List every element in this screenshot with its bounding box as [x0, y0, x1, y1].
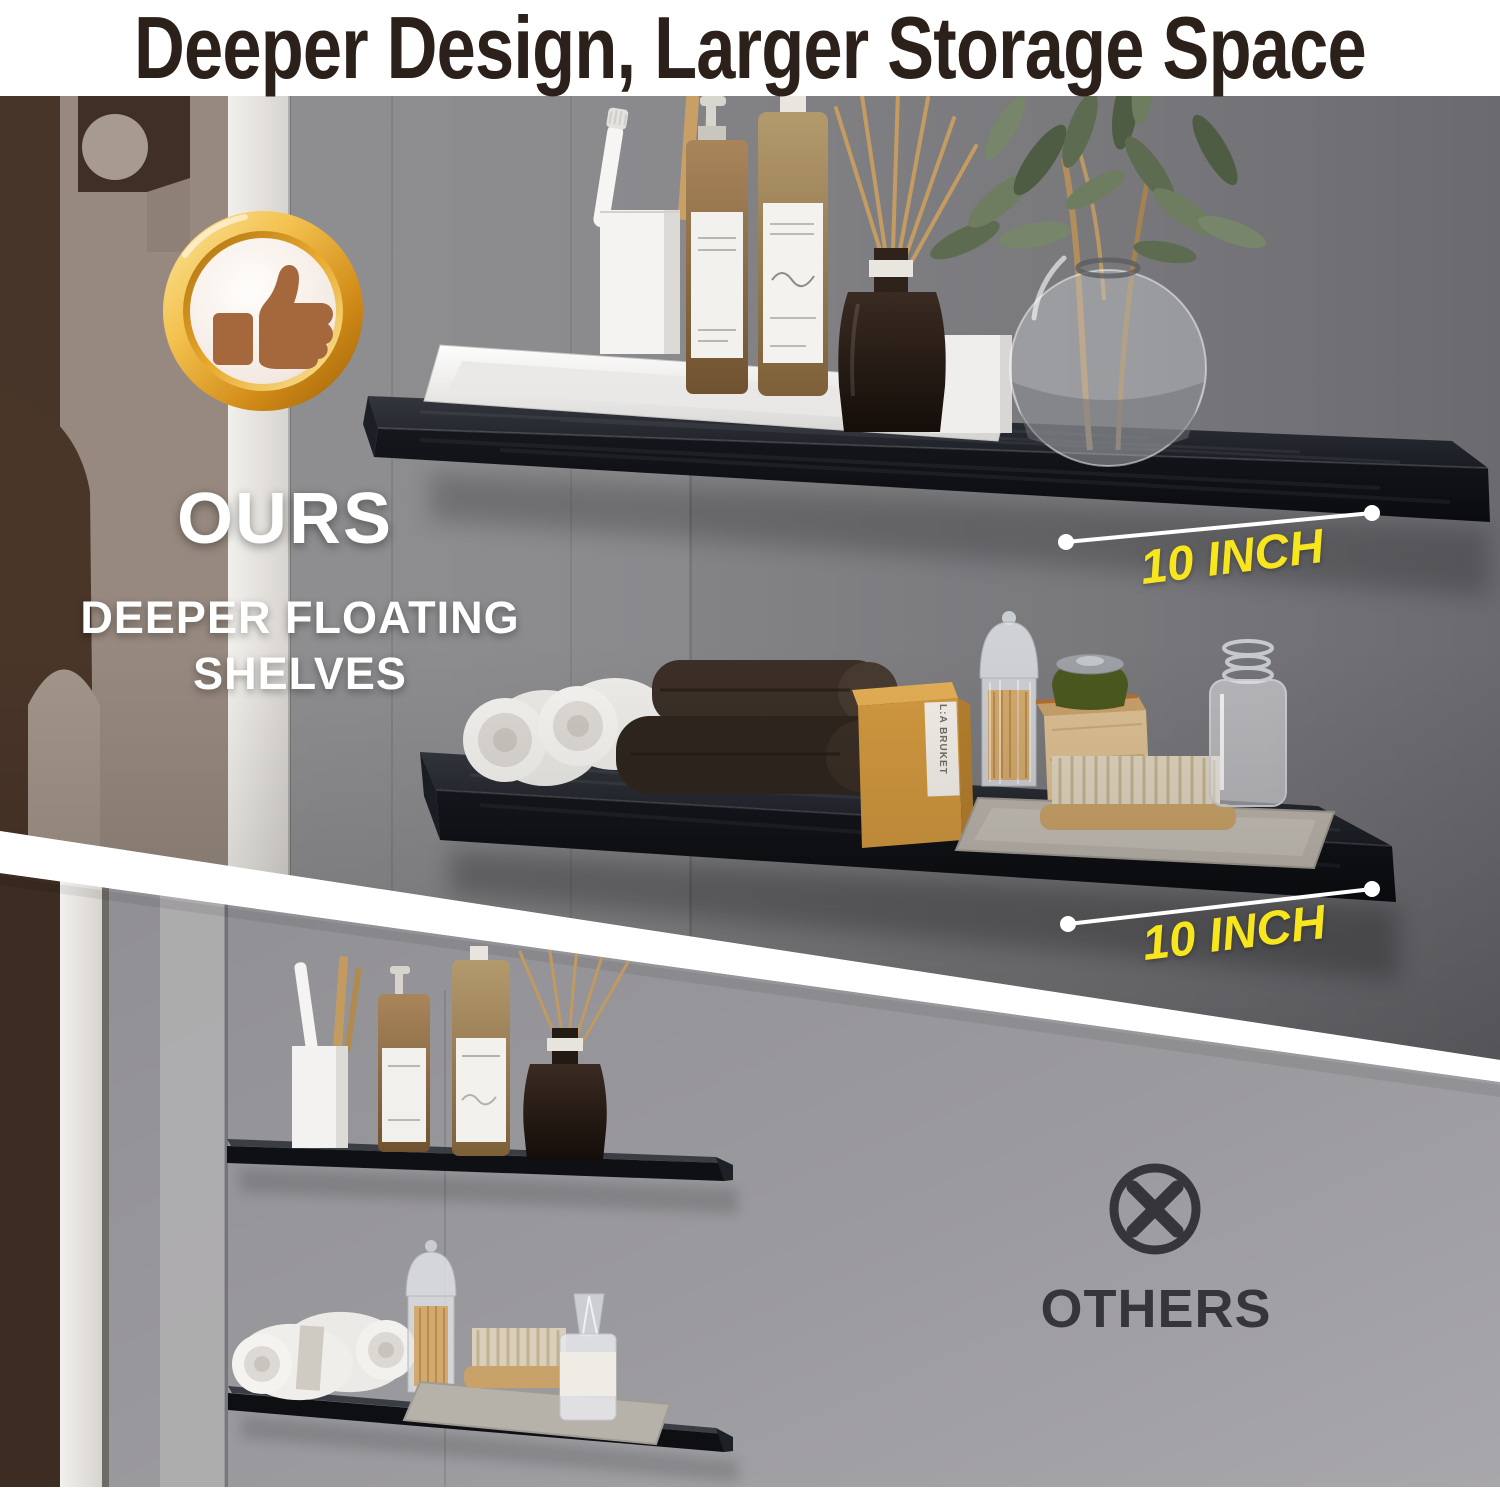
door-casing: [160, 830, 224, 1490]
bottom-margin: [0, 1487, 1500, 1493]
picture-frame: [60, 830, 102, 1490]
frame-gap: [102, 830, 109, 1490]
ours-subtitle-line2: SHELVES: [45, 648, 555, 700]
gold-badge: [163, 211, 363, 411]
soap-box-brand-label: L:A BRUKET: [934, 704, 948, 796]
others-label: OTHERS: [1000, 1278, 1312, 1340]
title-banner: Deeper Design, Larger Storage Space: [0, 0, 1500, 96]
ours-subtitle-line1: DEEPER FLOATING: [45, 592, 555, 644]
wooden-brush-small: [464, 1328, 574, 1388]
cosmetic-bottle-small: [452, 946, 510, 1156]
product-comparison-image: Deeper Design, Larger Storage Space OURS…: [0, 0, 1500, 1493]
ours-label: OURS: [45, 478, 525, 560]
cotton-swab-jar-small: [406, 1240, 456, 1392]
page-title: Deeper Design, Larger Storage Space: [134, 0, 1366, 99]
art-edge: [0, 830, 60, 1490]
photo-scene: [0, 0, 1500, 1493]
